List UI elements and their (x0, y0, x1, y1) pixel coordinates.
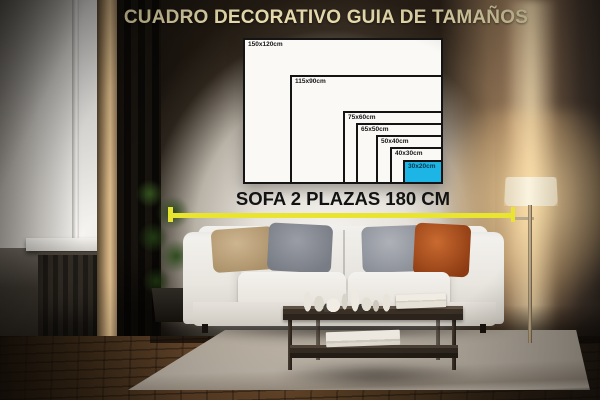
sofa-foot-left (202, 324, 208, 333)
window-frame (97, 0, 119, 348)
lamp-pole (528, 205, 532, 343)
table-lower-shelf (290, 345, 458, 358)
lamp-shade (504, 177, 558, 206)
window (0, 0, 110, 250)
size-label: 50x40cm (381, 138, 408, 145)
size-label: 115x90cm (295, 78, 326, 85)
measurement-bar (170, 213, 513, 218)
size-label: 30x20cm (408, 163, 435, 170)
measurement-cap-right (511, 207, 516, 222)
ceramic-decor-set (300, 286, 395, 312)
size-guide: 150x120cm115x90cm75x60cm65x50cm50x40cm40… (243, 38, 443, 184)
measurement-line (168, 207, 515, 223)
table-leg-front-right (452, 318, 456, 370)
size-rect-30x20cm: 30x20cm (403, 160, 443, 184)
window-mullion (72, 0, 79, 242)
pillow-gray-left (267, 222, 333, 273)
sofa-foot-right (480, 324, 486, 333)
product-size-guide-image: 150x120cm115x90cm75x60cm65x50cm50x40cm40… (0, 0, 600, 400)
pillow-orange (413, 223, 472, 278)
size-label: 65x50cm (361, 126, 388, 133)
table-leg-front-left (288, 318, 292, 370)
page-title: CUADRO DECORATIVO GUIA DE TAMAÑOS (116, 7, 536, 29)
size-label: 150x120cm (248, 41, 283, 48)
radiator (38, 252, 104, 344)
size-label: 75x60cm (348, 114, 375, 121)
book-on-shelf (326, 330, 400, 348)
coffee-table-shadow (280, 362, 470, 388)
books-on-table (396, 293, 446, 309)
size-label: 40x30cm (395, 150, 422, 157)
